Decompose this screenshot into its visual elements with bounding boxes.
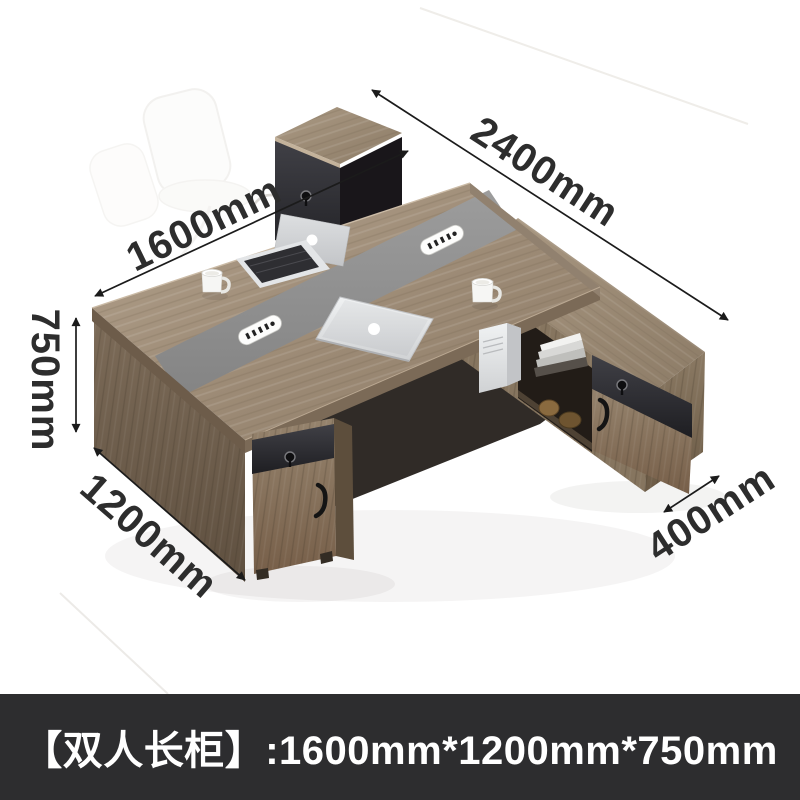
laptop-logo-icon bbox=[368, 323, 380, 335]
size-banner-text: 【双人长柜】:1600mm*1200mm*750mm bbox=[22, 718, 778, 776]
product-dimension-image: 2400mm 1600mm 750mm 1200mm 400mm 【双人长柜】:… bbox=[0, 0, 800, 800]
desk-render bbox=[0, 0, 800, 694]
size-banner: 【双人长柜】:1600mm*1200mm*750mm bbox=[0, 694, 800, 800]
pc-tower bbox=[479, 323, 521, 393]
pedestal-side bbox=[334, 418, 354, 560]
dimension-label-desk-height: 750mm bbox=[25, 309, 65, 452]
pedestal-cabinet bbox=[252, 418, 354, 580]
